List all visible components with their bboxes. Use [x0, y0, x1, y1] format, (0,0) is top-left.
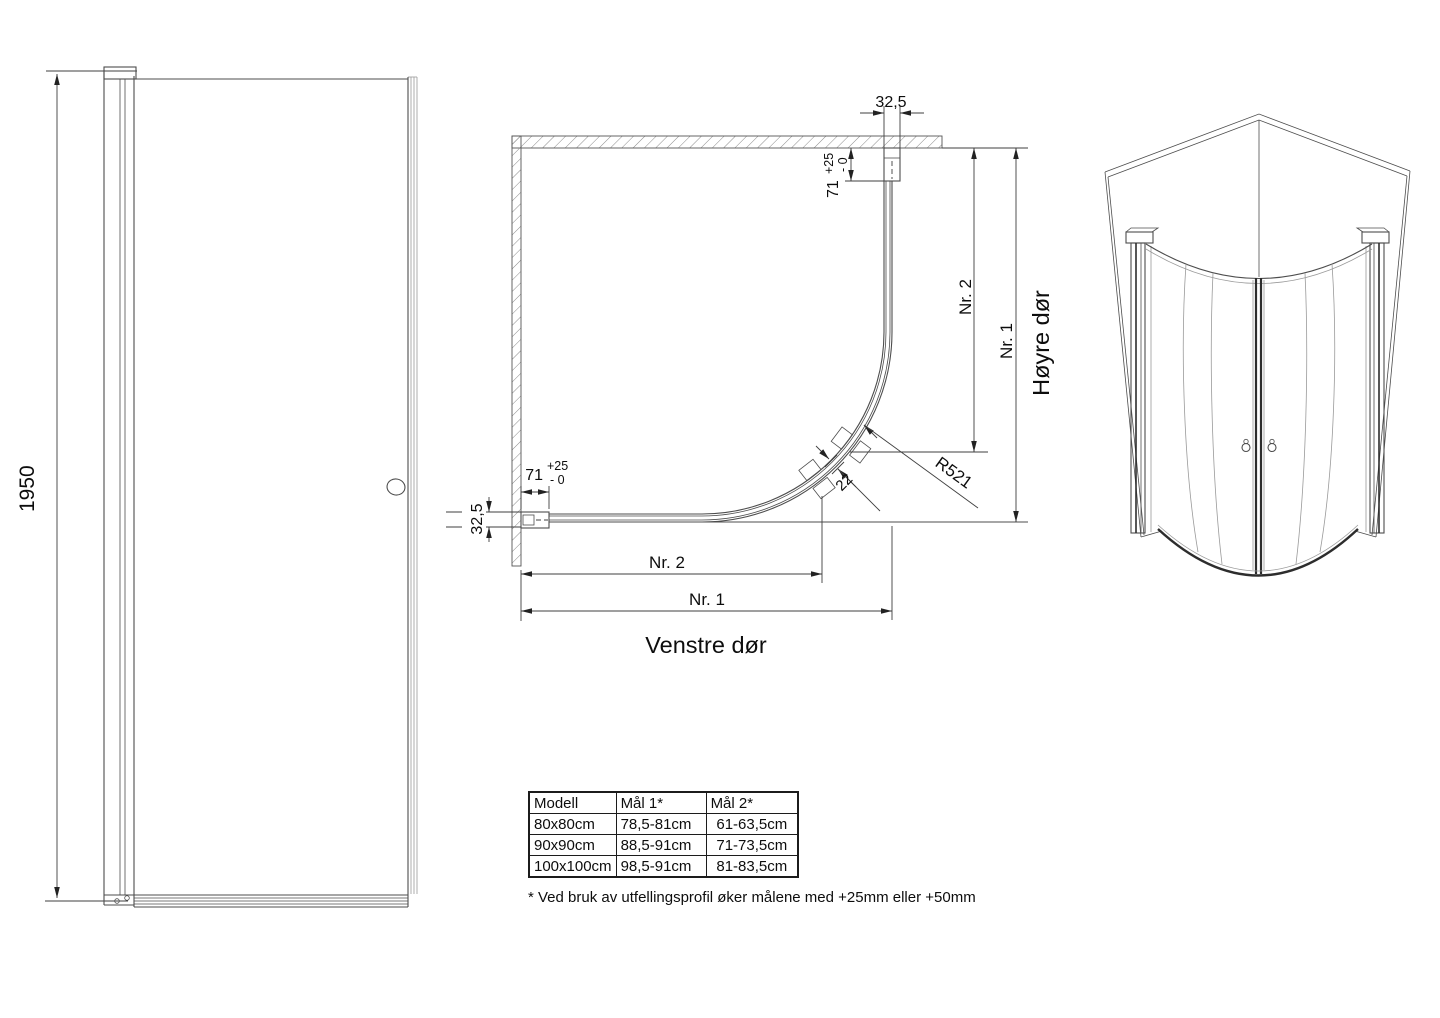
glass-curve-inner	[702, 332, 884, 514]
top-wall	[512, 136, 942, 148]
height-dim-label: 1950	[16, 465, 39, 512]
top-depth-label: 71	[825, 180, 842, 198]
radius-label: R521	[932, 453, 976, 492]
left-wall	[512, 136, 521, 566]
left-door-label: Venstre dør	[645, 632, 767, 658]
table-cell: 88,5-91cm	[616, 835, 706, 856]
table-row: 90x90cm 88,5-91cm 71-73,5cm	[529, 835, 798, 856]
iso-left-profile	[1126, 228, 1158, 533]
table-cell: 61-63,5cm	[706, 814, 798, 835]
iso-right-profile	[1357, 228, 1389, 533]
technical-drawing-page: 1950	[0, 0, 1440, 1018]
tolerance-minus-label: - 0	[836, 157, 850, 172]
bottom-wall-profile	[521, 512, 549, 528]
right-door-label: Høyre dør	[1028, 290, 1054, 396]
tolerance-plus-label: +25	[547, 459, 568, 473]
plan-handle-1	[831, 427, 871, 463]
top-wall-profile	[884, 148, 900, 181]
glass-curve-outer	[702, 332, 892, 522]
tolerance-plus-label: +25	[822, 153, 836, 174]
table-cell: 78,5-81cm	[616, 814, 706, 835]
wall-profile-cap	[104, 67, 136, 79]
table-header-modell: Modell	[529, 792, 616, 814]
table-cell: 80x80cm	[529, 814, 616, 835]
right-nr2-label: Nr. 2	[956, 279, 975, 315]
table-cell: 100x100cm	[529, 856, 616, 878]
bottom-nr2-label: Nr. 2	[649, 553, 685, 572]
table-header-mal2: Mål 2*	[706, 792, 798, 814]
table-row: 100x100cm 98,5-91cm 81-83,5cm	[529, 856, 798, 878]
left-width-dim: 32,5	[446, 493, 521, 545]
table-header-row: Modell Mål 1* Mål 2*	[529, 792, 798, 814]
plan-view: 22 R521 32,5 71 +25 - 0	[446, 94, 1054, 658]
top-width-label: 32,5	[875, 94, 906, 111]
right-dims: Nr. 2 Nr. 1 Høyre dør	[850, 148, 1054, 620]
tolerance-minus-label: - 0	[550, 473, 565, 487]
bottom-nr1-label: Nr. 1	[689, 590, 725, 609]
iso-view	[1105, 114, 1410, 576]
wall-top-outer-edge	[1105, 114, 1410, 172]
table-header-mal1: Mål 1*	[616, 792, 706, 814]
side-view: 1950	[16, 67, 417, 907]
glass-thickness-label: 22	[832, 471, 856, 495]
table-cell: 98,5-91cm	[616, 856, 706, 878]
left-width-label: 32,5	[469, 503, 486, 534]
table-cell: 90x90cm	[529, 835, 616, 856]
iso-handle-right	[1268, 439, 1276, 451]
right-nr1-label: Nr. 1	[997, 323, 1016, 359]
table-cell: 71-73,5cm	[706, 835, 798, 856]
left-depth-label: 71	[525, 467, 543, 484]
iso-handle-left	[1242, 439, 1250, 451]
door-bottom-curve	[1158, 529, 1358, 576]
left-depth-dim: 71 +25 - 0	[521, 459, 568, 509]
top-depth-dim: 71 +25 - 0	[822, 148, 884, 198]
bottom-rail	[134, 894, 408, 907]
model-dimensions-table: Modell Mål 1* Mål 2* 80x80cm 78,5-81cm 6…	[528, 791, 799, 878]
footnote-text: * Ved bruk av utfellingsprofil øker måle…	[528, 889, 976, 906]
radius-leader: R521	[864, 425, 978, 508]
door-handle-knob	[386, 478, 407, 497]
screw-icon	[125, 896, 130, 901]
table-cell: 81-83,5cm	[706, 856, 798, 878]
table-row: 80x80cm 78,5-81cm 61-63,5cm	[529, 814, 798, 835]
